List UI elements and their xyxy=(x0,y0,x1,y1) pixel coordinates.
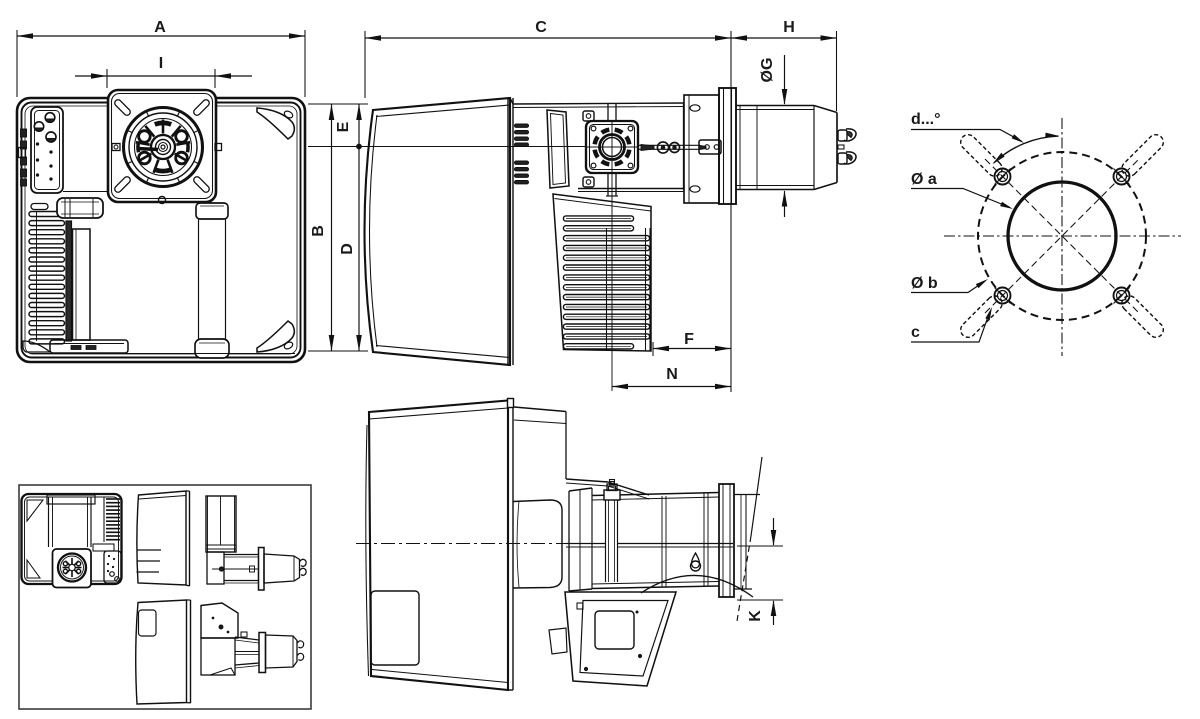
svg-text:N: N xyxy=(666,366,678,383)
svg-text:C: C xyxy=(535,19,547,36)
svg-text:c: c xyxy=(911,324,920,341)
svg-text:K: K xyxy=(747,610,764,622)
svg-text:d...°: d...° xyxy=(911,111,941,128)
svg-text:F: F xyxy=(684,331,694,348)
svg-text:A: A xyxy=(154,19,166,36)
svg-text:ØG: ØG xyxy=(759,58,776,83)
svg-text:B: B xyxy=(310,225,327,237)
svg-text:D: D xyxy=(339,243,356,255)
svg-text:Ø b: Ø b xyxy=(911,275,938,292)
svg-text:I: I xyxy=(159,55,163,72)
svg-text:H: H xyxy=(783,19,795,36)
svg-text:E: E xyxy=(335,121,352,132)
svg-text:Ø a: Ø a xyxy=(911,171,937,188)
